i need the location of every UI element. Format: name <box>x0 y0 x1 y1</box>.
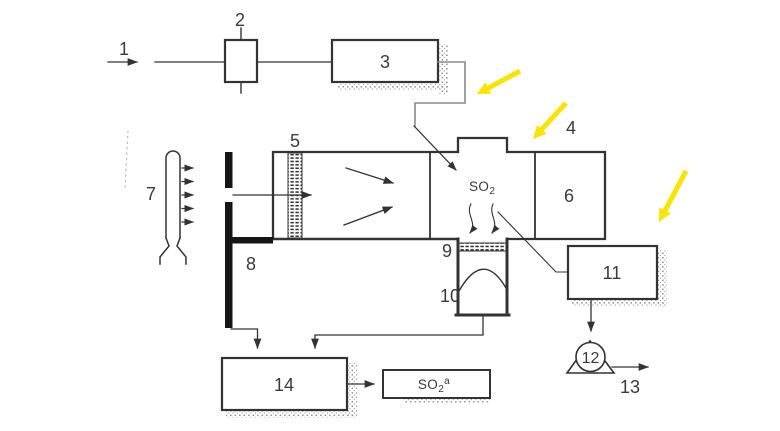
chamber-flow-arrow-lower <box>344 207 392 225</box>
gas-flow-wave-left <box>469 204 472 233</box>
label-9: 9 <box>442 241 452 261</box>
faint-dotted-trace <box>125 131 128 189</box>
box-11-insulation-right <box>658 250 667 307</box>
label-13: 13 <box>620 377 640 397</box>
label-7: 7 <box>146 184 156 204</box>
so2-sample-box-shadow <box>404 399 490 403</box>
process-flow-diagram: 1 2 3 4 5 6 7 8 9 10 11 12 13 14 SO2 SO2… <box>0 0 780 431</box>
label-so2-chamber: SO2 <box>469 179 495 197</box>
box-11-insulation-bottom <box>572 300 666 306</box>
label-10: 10 <box>440 286 460 306</box>
highlight-arrow-2 <box>533 101 568 139</box>
so2a-base: SO <box>418 377 438 392</box>
box-14-insulation-right <box>348 362 357 417</box>
box-14-insulation-bottom <box>226 411 356 418</box>
label-2: 2 <box>235 10 245 30</box>
lamp-7-body <box>166 151 180 238</box>
label-5: 5 <box>290 131 300 151</box>
highlight-arrow-3 <box>659 170 688 222</box>
component-2-valve-box <box>225 40 257 82</box>
lamp-7-leg-right <box>177 238 186 264</box>
label-12: 12 <box>582 350 600 367</box>
label-8: 8 <box>246 254 256 274</box>
label-4: 4 <box>566 118 576 138</box>
chamber-outline <box>273 138 605 239</box>
label-1: 1 <box>119 39 129 59</box>
label-11: 11 <box>603 263 622 283</box>
so2-base: SO <box>469 179 489 194</box>
so2-pointer-arrow <box>414 126 456 170</box>
lamp-7-leg-left <box>160 238 169 264</box>
label-6: 6 <box>564 186 574 206</box>
diagram-ink-layer: 1 2 3 4 5 6 7 8 9 10 11 12 13 14 SO2 SO2… <box>108 10 688 418</box>
label-14: 14 <box>274 375 294 395</box>
line-8-to-14 <box>231 329 258 348</box>
filter-strip-9 <box>458 243 507 251</box>
gas-flow-wave-right <box>492 204 495 233</box>
barrier-8-horizontal <box>225 237 273 244</box>
so2a-superscript: a <box>444 376 450 387</box>
highlight-arrow-1 <box>477 69 521 94</box>
line-10-to-14 <box>315 316 483 348</box>
diagram-svg: 1 2 3 4 5 6 7 8 9 10 11 12 13 14 SO2 SO2… <box>0 0 780 431</box>
barrier-8-window <box>225 188 233 202</box>
label-3: 3 <box>380 52 390 72</box>
box-10-dome <box>459 269 506 291</box>
box-3-insulation-bottom <box>338 84 448 91</box>
chamber-flow-arrow-upper <box>346 168 393 183</box>
so2-subscript: 2 <box>489 186 495 197</box>
